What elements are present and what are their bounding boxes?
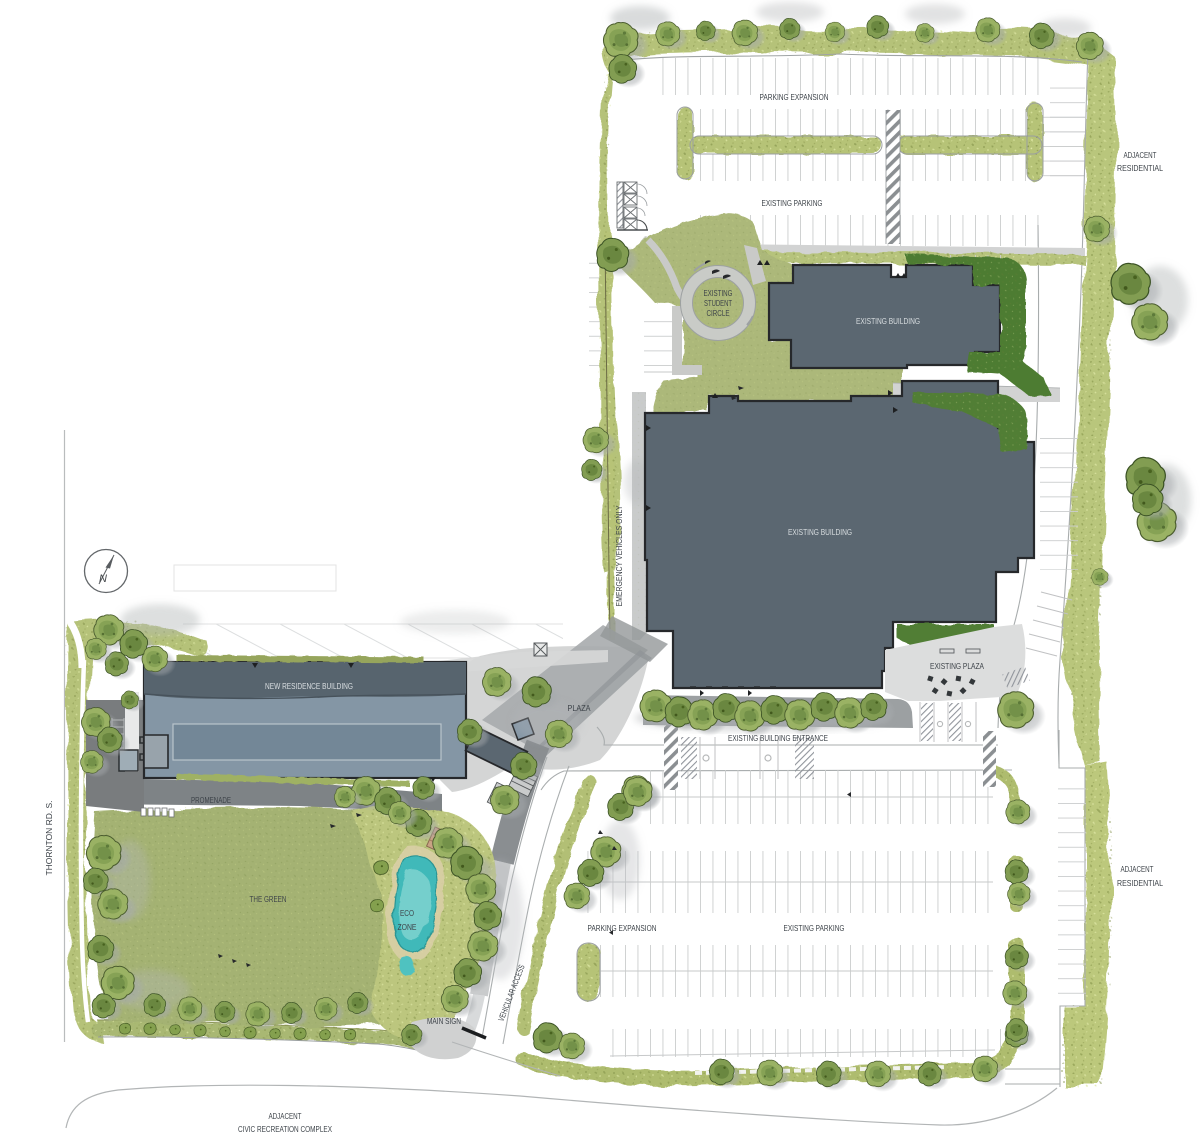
svg-text:EXISTING PLAZA: EXISTING PLAZA <box>930 661 984 671</box>
svg-text:N: N <box>99 573 107 585</box>
svg-text:EXISTING PARKING: EXISTING PARKING <box>762 198 823 208</box>
svg-text:EXISTING BUILDING ENTRANCE: EXISTING BUILDING ENTRANCE <box>728 733 828 743</box>
svg-text:ADJACENT: ADJACENT <box>1121 864 1154 874</box>
svg-text:ECO: ECO <box>400 908 414 918</box>
svg-text:NEW RESIDENCE BUILDING: NEW RESIDENCE BUILDING <box>265 682 353 691</box>
svg-text:PARKING EXPANSION: PARKING EXPANSION <box>760 92 829 102</box>
svg-text:EXISTING BUILDING: EXISTING BUILDING <box>856 317 920 326</box>
svg-text:ZONE: ZONE <box>398 922 417 932</box>
svg-text:CIRCLE: CIRCLE <box>707 308 730 318</box>
svg-text:EMERGENCY VEHICLES ONLY: EMERGENCY VEHICLES ONLY <box>614 505 624 606</box>
svg-text:ADJACENT: ADJACENT <box>1124 150 1157 160</box>
svg-text:CIVIC RECREATION COMPLEX: CIVIC RECREATION COMPLEX <box>238 1124 332 1134</box>
svg-text:ADJACENT: ADJACENT <box>269 1111 302 1121</box>
svg-text:THORNTON RD. S.: THORNTON RD. S. <box>44 801 54 876</box>
svg-text:STUDENT: STUDENT <box>704 298 732 308</box>
svg-text:RESIDENTIAL: RESIDENTIAL <box>1117 163 1163 173</box>
svg-text:EXISTING BUILDING: EXISTING BUILDING <box>788 528 852 537</box>
svg-text:MAIN SIGN: MAIN SIGN <box>427 1016 461 1026</box>
svg-text:PLAZA: PLAZA <box>568 703 591 713</box>
svg-text:RESIDENTIAL: RESIDENTIAL <box>1117 878 1163 888</box>
svg-text:PARKING EXPANSION: PARKING EXPANSION <box>588 923 657 933</box>
svg-text:EXISTING: EXISTING <box>704 288 733 298</box>
svg-text:THE GREEN: THE GREEN <box>250 894 287 904</box>
svg-text:PROMENADE: PROMENADE <box>191 795 231 805</box>
svg-text:EXISTING PARKING: EXISTING PARKING <box>784 923 845 933</box>
